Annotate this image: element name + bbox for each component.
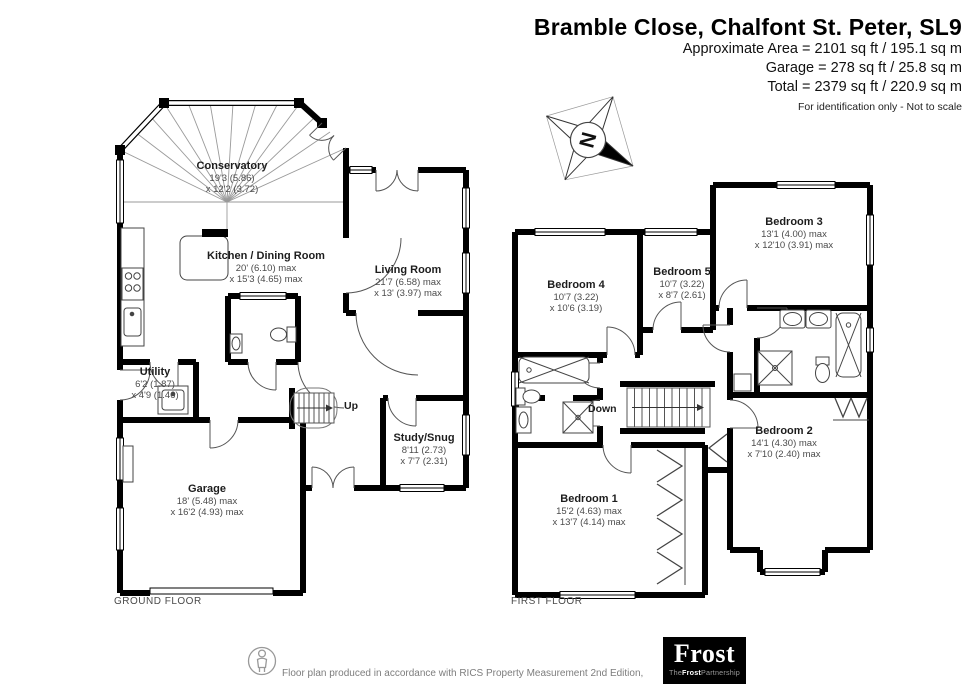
- toilet-icon-2: [816, 364, 830, 383]
- frost-logo-wordmark: Frost: [663, 640, 746, 668]
- floorplan-sheet: Bramble Close, Chalfont St. Peter, SL9 A…: [0, 0, 980, 692]
- ground-floor-caption: GROUND FLOOR: [114, 596, 202, 607]
- stove-icon: [122, 268, 143, 300]
- room-label-garage: Garage 18' (5.48) max x 16'2 (4.93) max: [170, 483, 243, 518]
- toilet-icon: [271, 328, 287, 341]
- first-floor-caption: FIRST FLOOR: [511, 596, 582, 607]
- stairs-up: [290, 388, 337, 428]
- conservatory-bay-windows: [115, 98, 327, 155]
- ground-walls: [120, 103, 466, 593]
- first-floor-plan: [505, 160, 895, 612]
- wc-cistern: [287, 327, 296, 342]
- toilet-icon: [523, 390, 540, 403]
- stairs-down-label: Down: [588, 403, 617, 415]
- page-title: Bramble Close, Chalfont St. Peter, SL9: [534, 14, 962, 40]
- frost-logo-subtitle: TheFrostPartnership: [663, 668, 746, 677]
- room-label-kitchen-dining: Kitchen / Dining Room 20' (6.10) max x 1…: [207, 250, 325, 285]
- room-label-bedroom-2: Bedroom 2 14'1 (4.30) max x 7'10 (2.40) …: [747, 425, 820, 460]
- room-label-conservatory: Conservatory 19'3 (5.86) x 12'2 (3.72): [197, 160, 268, 195]
- room-label-bedroom-5: Bedroom 5 10'7 (3.22) x 8'7 (2.61): [653, 266, 710, 301]
- frost-logo: Frost TheFrostPartnership: [663, 637, 746, 684]
- basin-icon: [516, 407, 531, 433]
- room-label-living-room: Living Room 21'7 (6.58) max x 13' (3.97)…: [374, 264, 442, 299]
- stairs-up-label: Up: [344, 400, 358, 412]
- room-label-utility: Utility 6'2 (1.87) x 4'9 (1.46): [131, 366, 178, 401]
- approximate-area: Approximate Area = 2101 sq ft / 195.1 sq…: [534, 40, 962, 59]
- stairs-down: [627, 388, 710, 427]
- person-scale-icon: [246, 641, 278, 681]
- room-label-bedroom-3: Bedroom 3 13'1 (4.00) max x 12'10 (3.91)…: [755, 216, 833, 251]
- room-label-study-snug: Study/Snug 8'11 (2.73) x 7'7 (2.31): [393, 432, 454, 467]
- room-label-bedroom-4: Bedroom 4 10'7 (3.22) x 10'6 (3.19): [547, 279, 604, 314]
- ground-doors: [120, 123, 418, 488]
- ground-floor-plan: [88, 88, 500, 610]
- room-label-bedroom-1: Bedroom 1 15'2 (4.63) max x 13'7 (4.14) …: [552, 493, 625, 528]
- garage-area: Garage = 278 sq ft / 25.8 sq m: [534, 59, 962, 78]
- garage-radiator: [123, 446, 133, 482]
- airing-cupboard: [734, 374, 751, 391]
